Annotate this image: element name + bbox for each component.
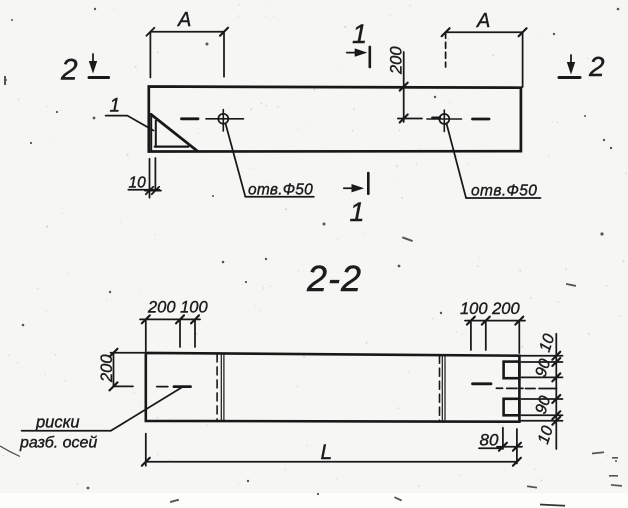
svg-text:разб. осей: разб. осей <box>19 435 97 452</box>
svg-text:A: A <box>476 10 490 32</box>
svg-text:1: 1 <box>110 96 121 117</box>
svg-text:1: 1 <box>352 19 367 49</box>
svg-text:2: 2 <box>588 51 605 82</box>
svg-text:A: A <box>177 9 191 31</box>
svg-text:1: 1 <box>350 197 365 227</box>
svg-text:200: 200 <box>98 354 116 383</box>
svg-text:отв.Ф50: отв.Ф50 <box>471 183 537 200</box>
svg-text:200: 200 <box>388 46 406 75</box>
svg-text:риски: риски <box>35 414 80 432</box>
svg-text:100 200: 100 200 <box>460 300 520 318</box>
svg-text:отв.Ф50: отв.Ф50 <box>248 182 313 199</box>
svg-text:2: 2 <box>60 54 78 87</box>
svg-text:2-2: 2-2 <box>306 258 362 299</box>
svg-text:200 100: 200 100 <box>147 299 208 317</box>
svg-text:L: L <box>321 441 333 464</box>
svg-text:80: 80 <box>480 431 499 450</box>
svg-text:10: 10 <box>129 175 147 192</box>
